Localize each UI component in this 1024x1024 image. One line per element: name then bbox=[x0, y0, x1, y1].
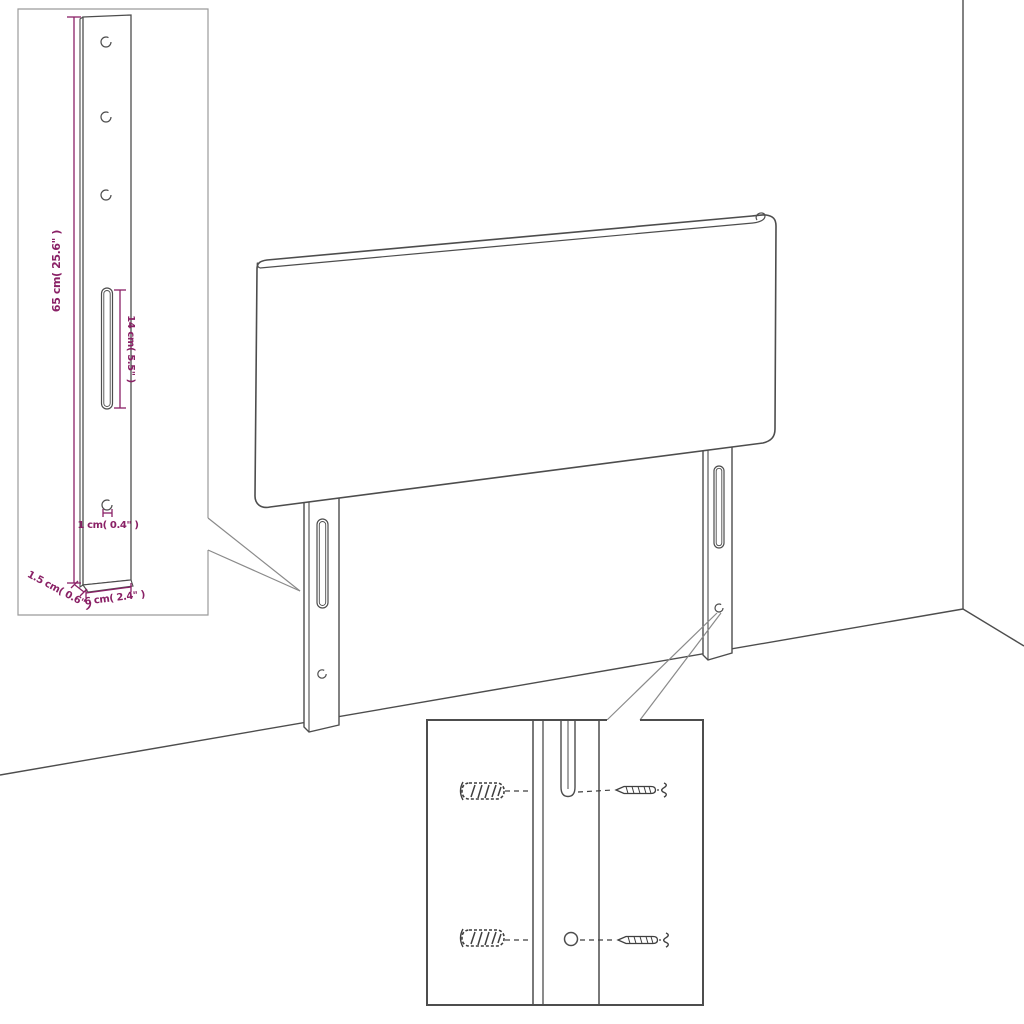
bracket-drawing bbox=[80, 15, 133, 592]
assembly-diagram-canvas: 65 cm( 25.6" ) 14 cm( 5.5" ) 1 cm( 0.4" … bbox=[0, 0, 1024, 1024]
callout-line-left bbox=[607, 613, 717, 720]
left-leg bbox=[304, 490, 339, 732]
bracket-detail-inset: 65 cm( 25.6" ) 14 cm( 5.5" ) 1 cm( 0.4" … bbox=[18, 9, 208, 615]
right-leg bbox=[703, 436, 732, 660]
callout-line-upper bbox=[208, 518, 300, 591]
bracket-inset-callout-lines bbox=[208, 518, 300, 591]
label-bracket-height: 65 cm( 25.6" ) bbox=[50, 230, 63, 312]
label-hole-size: 1 cm( 0.4" ) bbox=[77, 520, 138, 531]
floor-line-right bbox=[963, 609, 1024, 646]
callout-line-right bbox=[640, 613, 721, 720]
hardware-detail-inset bbox=[427, 720, 703, 1005]
callout-line-lower bbox=[208, 550, 300, 591]
headboard bbox=[255, 213, 776, 507]
label-slot-length: 14 cm( 5.5" ) bbox=[125, 315, 136, 383]
headboard-outline bbox=[255, 215, 776, 508]
diagram-stage: 65 cm( 25.6" ) 14 cm( 5.5" ) 1 cm( 0.4" … bbox=[0, 0, 1024, 1024]
hardware-inset-background bbox=[427, 720, 703, 1005]
